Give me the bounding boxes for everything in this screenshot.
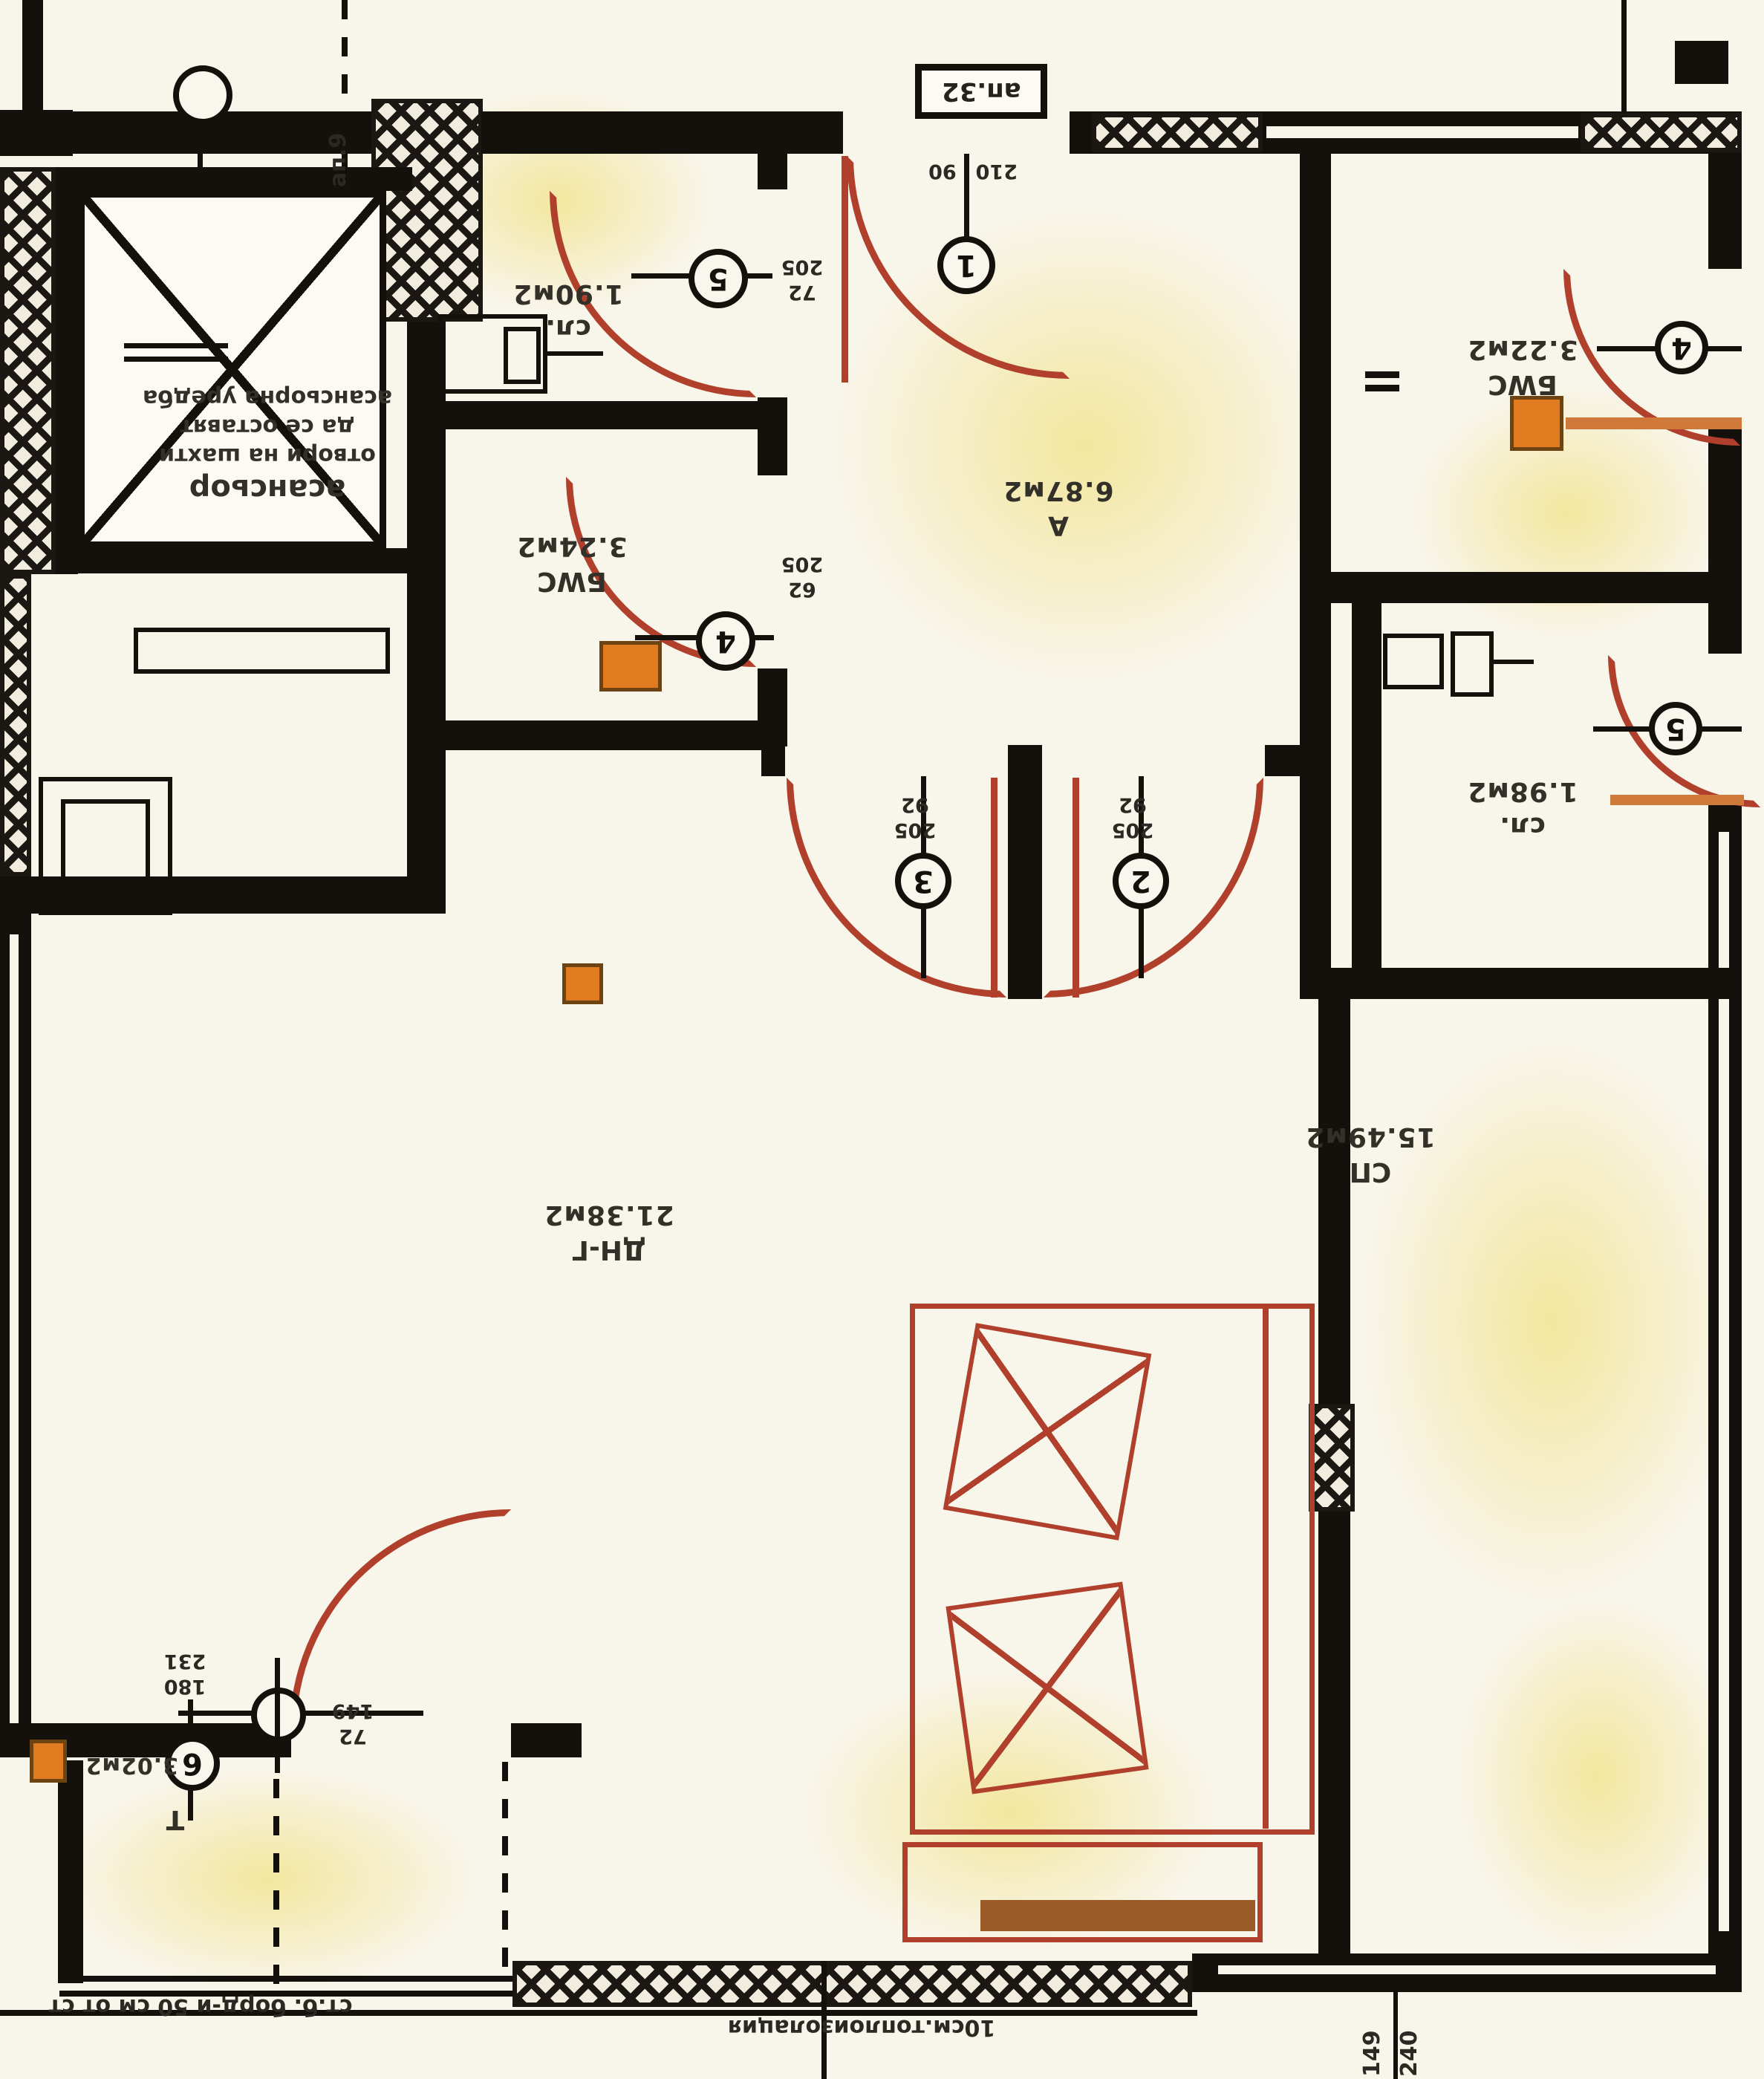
door-tag-4-number: 4 (1671, 331, 1692, 365)
wall (758, 154, 787, 189)
dim-bottom-right: 240 (1396, 2000, 1429, 2077)
dim-living-door: 205 92 (878, 789, 952, 842)
door-tag-2-number: 2 (1130, 864, 1151, 898)
door-tag-5-left: 5 (689, 249, 748, 308)
apartment-number: ап.32 (942, 77, 1021, 106)
room-name: СП (1274, 1154, 1467, 1188)
wall-cavity (1218, 1965, 1716, 1974)
door-threshold (1566, 417, 1742, 429)
room-name: БWC (1437, 366, 1608, 401)
cabinet-shelf (980, 1900, 1255, 1931)
room-area: 6.87м2 (962, 472, 1155, 507)
room-area: 1.90м2 (475, 276, 661, 310)
door-leaf (842, 156, 848, 383)
dim-closet1-door: 72 205 (769, 236, 836, 305)
door-tag-3: 3 (895, 853, 951, 909)
duct-shaft-small (562, 963, 603, 1004)
hatched-wall (512, 1961, 1192, 2007)
room-label-living: ДН-Г 21.38м2 (512, 1185, 706, 1266)
wall (481, 111, 843, 154)
door-tag-5-right: 5 (1649, 702, 1702, 755)
leader-line (921, 908, 926, 978)
duct-shaft (599, 641, 662, 692)
wall (1352, 603, 1381, 968)
door-threshold (1610, 795, 1744, 805)
duct-shaft (1510, 396, 1563, 451)
wall-cavity (10, 934, 19, 1735)
wall-cavity (1266, 126, 1578, 138)
dim-value: 205 (894, 817, 936, 842)
room-area: 21.38м2 (512, 1197, 706, 1232)
room-label-hall: А 6.87м2 (962, 453, 1155, 542)
dim-value: 92 (901, 793, 929, 818)
leader-line (188, 1699, 193, 1738)
hatched-pier (1581, 113, 1742, 152)
leader-line (1699, 726, 1742, 732)
room-label-wc-left: БWC 3.24м2 (486, 516, 657, 598)
wall (1300, 154, 1331, 999)
room-area: 3.24м2 (486, 528, 657, 563)
wall (412, 720, 761, 750)
dim-value: 72 (339, 1723, 367, 1748)
dim-value: 205 (1112, 817, 1153, 842)
dim-value: 90 (928, 147, 957, 183)
wall (56, 167, 412, 191)
floor-plan-canvas: асансьор отвори на шахти да се оставят а… (0, 0, 1764, 2079)
side-vertical-label: ап.9 (325, 9, 358, 187)
elevator-note: асансьор отвори на шахти да се оставят а… (111, 279, 423, 509)
door-leaf (991, 778, 997, 998)
room-label-terrace-area: 3.02м2 (100, 1744, 178, 1780)
pillow (943, 1323, 1152, 1540)
terrace-boundary-dashed (502, 1762, 508, 1976)
wall (0, 110, 73, 156)
room-name: БWC (486, 563, 657, 598)
room-area: 1.98м2 (1441, 773, 1604, 808)
room-name: сл. (1441, 808, 1604, 843)
elevator-note-line: отвори на шахти (111, 441, 423, 470)
dim-wc-left-door: 62 205 (769, 533, 836, 602)
dim-value: 72 (788, 279, 816, 305)
door-tag-4-right: 4 (1655, 321, 1708, 374)
door-tag-4-left: 4 (696, 611, 755, 671)
terrace-edge (59, 1976, 512, 1982)
door-tag-3-number: 3 (913, 864, 934, 898)
axis-line (275, 1658, 280, 1773)
dim-value: 180 (164, 1673, 206, 1699)
hatched-pier (1309, 1404, 1355, 1512)
wall (511, 1723, 582, 1757)
axis-marker-top (173, 65, 232, 125)
elevator-note-line: да се оставят (111, 412, 423, 441)
washbasin (1451, 631, 1494, 697)
vent-tick (1365, 385, 1399, 391)
axis-line-dashed (273, 1779, 279, 1987)
scan-tint (59, 1768, 475, 1991)
door-tag-2: 2 (1113, 853, 1169, 909)
note-insulation: 10см.топлоизолация (631, 2014, 1092, 2040)
dim-value: 231 (164, 1649, 206, 1674)
dim-entry-door: 210 90 (925, 147, 1021, 183)
door-tag-5-number: 5 (708, 261, 729, 296)
room-name: А (962, 507, 1155, 542)
wall (71, 111, 412, 154)
dim-value: 92 (1119, 793, 1147, 818)
sofa-bed-line (1263, 1309, 1269, 1829)
door-leaf (1073, 778, 1079, 998)
leader-line (635, 635, 698, 640)
dim-value: 205 (781, 255, 823, 280)
wall (1708, 429, 1742, 654)
dim-value: 62 (788, 576, 816, 602)
pillow (946, 1582, 1148, 1795)
door-tag-1-number: 1 (956, 248, 977, 282)
room-name: Т (153, 1801, 198, 1836)
leader-line (1139, 908, 1144, 978)
dim-bottom-right: 149 (1359, 2000, 1392, 2077)
room-label-bedroom: СП 15.49м2 (1274, 1107, 1467, 1188)
wall (56, 548, 412, 573)
wall (1300, 968, 1742, 999)
landing-step (134, 628, 390, 674)
wall (58, 1760, 83, 1983)
dim-bedroom-door: 205 92 (1096, 789, 1170, 842)
wall (758, 668, 787, 746)
dim-value: 205 (781, 552, 823, 577)
apartment-number-box: ап.32 (915, 64, 1047, 119)
elevator-label: асансьор (111, 470, 423, 509)
room-label-wc-right: БWC 3.22м2 (1437, 319, 1608, 401)
hatched-wall (0, 574, 31, 876)
leader-line (1621, 0, 1627, 111)
room-label-closet1: сл. 1.90м2 (475, 264, 661, 345)
washbasin (1383, 634, 1444, 689)
note-curb: ст.б. борд-и 50 см от ст (0, 1994, 401, 2020)
room-name: сл. (475, 310, 661, 345)
hatched-pier (1092, 113, 1263, 152)
wall (758, 397, 787, 475)
wall (761, 745, 785, 776)
room-label-terrace-name: Т (153, 1800, 198, 1836)
room-label-closet2: сл. 1.98м2 (1441, 761, 1604, 843)
wall-stem (1008, 745, 1042, 999)
dim-terrace-door: 180 231 (151, 1630, 219, 1699)
wall (412, 401, 761, 429)
door-tag-5-number: 5 (1665, 712, 1686, 746)
vent-box (1675, 41, 1728, 84)
elevator-note-line: асансьорна уредба (111, 383, 423, 412)
wall (1331, 572, 1742, 603)
room-area: 15.49м2 (1274, 1119, 1467, 1154)
dim-value: 210 (976, 147, 1018, 183)
hatched-wall (0, 167, 56, 574)
washbasin-line (1493, 660, 1534, 664)
axis-line (198, 122, 203, 168)
room-name: ДН-Г (512, 1232, 706, 1266)
wall (56, 167, 78, 574)
duct-shaft-small (30, 1740, 67, 1783)
leader-line (1705, 346, 1742, 351)
dim-value: 149 (332, 1699, 374, 1724)
dim-axis: 72 149 (312, 1680, 394, 1748)
leader-line (1593, 726, 1651, 732)
wall (22, 0, 43, 110)
room-area: 3.02м2 (100, 1751, 178, 1780)
wall (1708, 154, 1742, 269)
window-frame (61, 799, 150, 893)
door-tag-4-number: 4 (715, 624, 736, 658)
door-tag-6-number: 6 (182, 1746, 203, 1780)
door-tag-1: 1 (937, 236, 995, 294)
vent-tick (1365, 371, 1399, 378)
scan-tint (1456, 1597, 1738, 1953)
room-area: 3.22м2 (1437, 331, 1608, 366)
cabinet-line (547, 351, 603, 356)
